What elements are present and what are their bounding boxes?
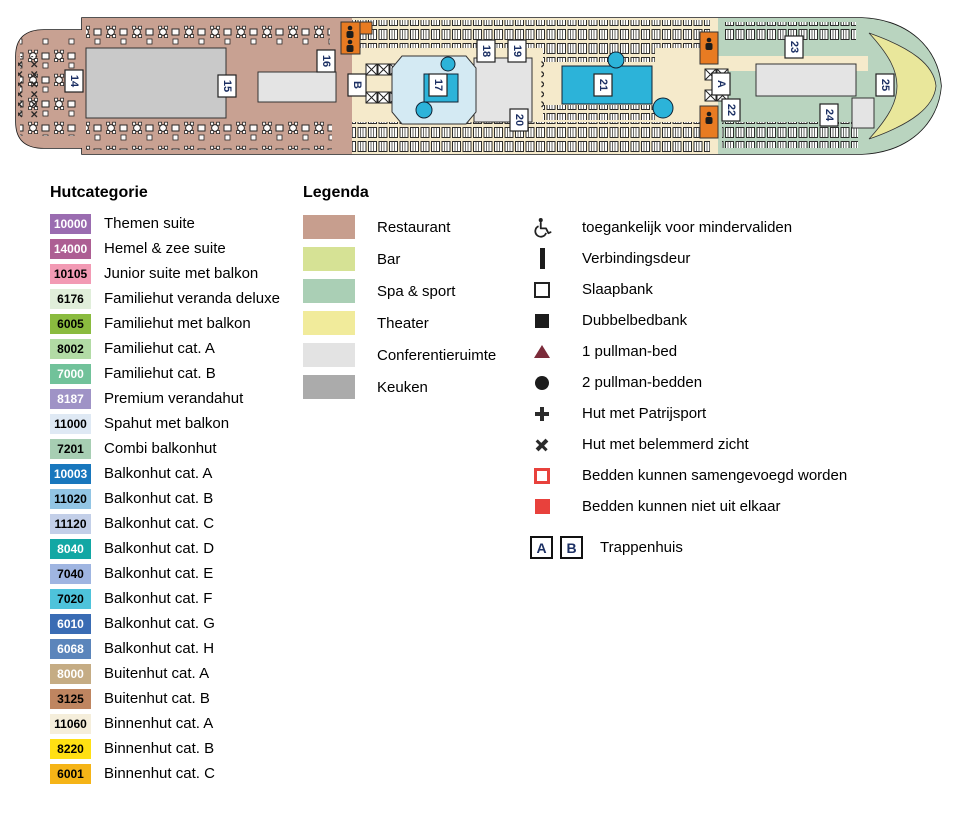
hut-item-label: Balkonhut cat. B bbox=[104, 490, 213, 507]
svg-text:16: 16 bbox=[320, 55, 332, 67]
symbol-item: Dubbelbedbank bbox=[530, 305, 940, 336]
legend-area-item: Theater bbox=[303, 307, 528, 339]
hut-item-label: Balkonhut cat. E bbox=[104, 565, 213, 582]
pullman-2-icon bbox=[535, 376, 549, 390]
hut-code-swatch: 11120 bbox=[50, 514, 91, 534]
deck-marker-A: A bbox=[712, 73, 730, 95]
hutcategorie-title: Hutcategorie bbox=[50, 184, 303, 202]
symbol-item: toegankelijk voor mindervaliden bbox=[530, 212, 940, 243]
symbol-label: 2 pullman-bedden bbox=[582, 374, 702, 391]
legend-color-swatch bbox=[303, 215, 355, 239]
hut-item-label: Familiehut cat. B bbox=[104, 365, 216, 382]
hut-code-swatch: 7020 bbox=[50, 589, 91, 609]
deck-plan-page: 141516B1718192021A22232425 Hutcategorie … bbox=[0, 0, 953, 819]
hut-item-label: Balkonhut cat. G bbox=[104, 615, 215, 632]
deck-marker-B: B bbox=[348, 74, 366, 96]
hut-code-swatch: 11020 bbox=[50, 489, 91, 509]
deck-marker-21: 21 bbox=[594, 74, 612, 96]
deck-marker-23: 23 bbox=[785, 36, 803, 58]
hut-item-label: Hemel & zee suite bbox=[104, 240, 226, 257]
legend-area-label: Restaurant bbox=[377, 219, 450, 236]
legenda-legend: Legenda RestaurantBarSpa & sportTheaterC… bbox=[303, 184, 528, 403]
hut-item: 8002Familiehut cat. A bbox=[50, 336, 303, 361]
kitchen-block bbox=[86, 48, 226, 118]
hut-code-swatch: 6068 bbox=[50, 639, 91, 659]
hut-item-label: Binnenhut cat. A bbox=[104, 715, 213, 732]
hut-code-swatch: 7201 bbox=[50, 439, 91, 459]
hut-item: 11120Balkonhut cat. C bbox=[50, 511, 303, 536]
legend-area-label: Spa & sport bbox=[377, 283, 455, 300]
symbol-label: Bedden kunnen samengevoegd worden bbox=[582, 467, 847, 484]
hut-code-swatch: 10003 bbox=[50, 464, 91, 484]
double-sofa-bed-icon bbox=[535, 314, 549, 328]
hut-code-swatch: 8000 bbox=[50, 664, 91, 684]
legenda-list: RestaurantBarSpa & sportTheaterConferent… bbox=[303, 211, 528, 403]
stairwell-box-a: A bbox=[530, 536, 553, 559]
hut-item: 8040Balkonhut cat. D bbox=[50, 536, 303, 561]
hut-code-swatch: 3125 bbox=[50, 689, 91, 709]
hut-item: 8187Premium verandahut bbox=[50, 386, 303, 411]
symbol-label: Dubbelbedbank bbox=[582, 312, 687, 329]
hut-code-swatch: 10000 bbox=[50, 214, 91, 234]
hut-item: 6176Familiehut veranda deluxe bbox=[50, 286, 303, 311]
hut-item: 14000Hemel & zee suite bbox=[50, 236, 303, 261]
double-sofa-bed-icon bbox=[530, 309, 554, 333]
deck-marker-17: 17 bbox=[429, 74, 447, 96]
symbols-legend: toegankelijk voor mindervalidenVerbindin… bbox=[530, 212, 940, 563]
hut-item-label: Spahut met balkon bbox=[104, 415, 229, 432]
svg-text:B: B bbox=[351, 81, 363, 89]
hut-item: 6001Binnenhut cat. C bbox=[50, 761, 303, 786]
hut-code-swatch: 7040 bbox=[50, 564, 91, 584]
legend-area-item: Conferentieruimte bbox=[303, 339, 528, 371]
hutcategorie-legend: Hutcategorie 10000Themen suite14000Hemel… bbox=[50, 184, 303, 786]
legend-area-item: Spa & sport bbox=[303, 275, 528, 307]
hut-code-swatch: 8040 bbox=[50, 539, 91, 559]
legend-area-item: Bar bbox=[303, 243, 528, 275]
hut-item: 8000Buitenhut cat. A bbox=[50, 661, 303, 686]
legend-area-item: Restaurant bbox=[303, 211, 528, 243]
hut-code-swatch: 11000 bbox=[50, 414, 91, 434]
hut-code-swatch: 11060 bbox=[50, 714, 91, 734]
hut-item: 7040Balkonhut cat. E bbox=[50, 561, 303, 586]
hut-item-label: Balkonhut cat. A bbox=[104, 465, 212, 482]
beds-joinable-icon bbox=[530, 464, 554, 488]
legend-area-label: Theater bbox=[377, 315, 429, 332]
deck-marker-22: 22 bbox=[722, 99, 740, 121]
beds-joinable-icon bbox=[534, 468, 550, 484]
legend-area-label: Keuken bbox=[377, 379, 428, 396]
legend-color-swatch bbox=[303, 343, 355, 367]
hut-item-label: Familiehut met balkon bbox=[104, 315, 251, 332]
hut-item-label: Binnenhut cat. B bbox=[104, 740, 214, 757]
hut-code-swatch: 8002 bbox=[50, 339, 91, 359]
connecting-door-icon bbox=[530, 247, 554, 271]
pullman-1-icon bbox=[534, 345, 550, 358]
hut-code-swatch: 6005 bbox=[50, 314, 91, 334]
svg-text:25: 25 bbox=[879, 79, 891, 91]
hut-code-swatch: 7000 bbox=[50, 364, 91, 384]
hut-item: 6068Balkonhut cat. H bbox=[50, 636, 303, 661]
svg-text:14: 14 bbox=[68, 75, 80, 88]
hut-item-label: Familiehut veranda deluxe bbox=[104, 290, 280, 307]
legend-color-swatch bbox=[303, 375, 355, 399]
sofa-bed-icon bbox=[530, 278, 554, 302]
porthole-icon bbox=[530, 402, 554, 426]
deck-marker-19: 19 bbox=[508, 40, 526, 62]
trappenhuis-row: AB Trappenhuis bbox=[530, 532, 940, 563]
hut-item-label: Balkonhut cat. H bbox=[104, 640, 214, 657]
symbol-item: 1 pullman-bed bbox=[530, 336, 940, 367]
svg-text:23: 23 bbox=[788, 41, 800, 53]
pullman-1-icon bbox=[530, 340, 554, 364]
hut-item: 8220Binnenhut cat. B bbox=[50, 736, 303, 761]
hut-item: 10003Balkonhut cat. A bbox=[50, 461, 303, 486]
symbol-label: toegankelijk voor mindervaliden bbox=[582, 219, 792, 236]
hutcategorie-list: 10000Themen suite14000Hemel & zee suite1… bbox=[50, 211, 303, 786]
legend-color-swatch bbox=[303, 247, 355, 271]
spa-block bbox=[756, 64, 856, 96]
wheelchair-icon bbox=[532, 217, 553, 238]
svg-text:21: 21 bbox=[597, 79, 609, 91]
hut-item-label: Familiehut cat. A bbox=[104, 340, 215, 357]
hut-item: 3125Buitenhut cat. B bbox=[50, 686, 303, 711]
hut-item-label: Binnenhut cat. C bbox=[104, 765, 215, 782]
legend-area-label: Bar bbox=[377, 251, 400, 268]
deck-marker-16: 16 bbox=[317, 50, 335, 72]
svg-text:A: A bbox=[715, 80, 727, 88]
hut-item-label: Premium verandahut bbox=[104, 390, 243, 407]
hut-code-swatch: 8220 bbox=[50, 739, 91, 759]
deck-marker-15: 15 bbox=[218, 75, 236, 97]
symbol-item: Bedden kunnen samengevoegd worden bbox=[530, 460, 940, 491]
symbol-item: Hut met belemmerd zicht bbox=[530, 429, 940, 460]
symbol-item: 2 pullman-bedden bbox=[530, 367, 940, 398]
legenda-title: Legenda bbox=[303, 184, 528, 202]
beds-fixed-icon bbox=[535, 499, 550, 514]
svg-text:15: 15 bbox=[221, 80, 233, 92]
stairwell-boxes: AB bbox=[530, 536, 590, 559]
svg-text:20: 20 bbox=[513, 114, 525, 126]
hut-code-swatch: 6001 bbox=[50, 764, 91, 784]
hut-item: 6010Balkonhut cat. G bbox=[50, 611, 303, 636]
symbol-label: 1 pullman-bed bbox=[582, 343, 677, 360]
hut-item: 10105Junior suite met balkon bbox=[50, 261, 303, 286]
deck-marker-20: 20 bbox=[510, 109, 528, 131]
hut-item: 6005Familiehut met balkon bbox=[50, 311, 303, 336]
hut-item: 7020Balkonhut cat. F bbox=[50, 586, 303, 611]
symbol-label: Bedden kunnen niet uit elkaar bbox=[582, 498, 780, 515]
trappenhuis-label: Trappenhuis bbox=[600, 539, 683, 556]
hut-item-label: Balkonhut cat. F bbox=[104, 590, 212, 607]
hut-item: 7201Combi balkonhut bbox=[50, 436, 303, 461]
hut-code-swatch: 6176 bbox=[50, 289, 91, 309]
deck-marker-18: 18 bbox=[477, 40, 495, 62]
symbol-label: Verbindingsdeur bbox=[582, 250, 690, 267]
connecting-door-icon bbox=[540, 248, 545, 269]
svg-text:22: 22 bbox=[725, 104, 737, 116]
svg-text:24: 24 bbox=[823, 109, 835, 122]
obstructed-view-icon bbox=[531, 433, 554, 456]
hut-code-swatch: 14000 bbox=[50, 239, 91, 259]
hut-item-label: Junior suite met balkon bbox=[104, 265, 258, 282]
symbol-label: Hut met Patrijsport bbox=[582, 405, 706, 422]
wheelchair-icon bbox=[530, 216, 554, 240]
symbol-item: Verbindingsdeur bbox=[530, 243, 940, 274]
deck-marker-14: 14 bbox=[65, 70, 83, 92]
pullman-2-icon bbox=[530, 371, 554, 395]
hut-code-swatch: 8187 bbox=[50, 389, 91, 409]
stage-block bbox=[258, 72, 336, 102]
hut-code-swatch: 6010 bbox=[50, 614, 91, 634]
symbol-item: Hut met Patrijsport bbox=[530, 398, 940, 429]
deck-marker-25: 25 bbox=[876, 74, 894, 96]
legend-color-swatch bbox=[303, 311, 355, 335]
hut-item-label: Balkonhut cat. D bbox=[104, 540, 214, 557]
svg-text:17: 17 bbox=[432, 79, 444, 91]
symbol-label: Hut met belemmerd zicht bbox=[582, 436, 749, 453]
whirlpool bbox=[653, 98, 673, 118]
symbol-label: Slaapbank bbox=[582, 281, 653, 298]
hut-code-swatch: 10105 bbox=[50, 264, 91, 284]
legend-area-label: Conferentieruimte bbox=[377, 347, 496, 364]
svg-text:18: 18 bbox=[480, 45, 492, 57]
legend-color-swatch bbox=[303, 279, 355, 303]
hut-item: 11020Balkonhut cat. B bbox=[50, 486, 303, 511]
symbol-item: Bedden kunnen niet uit elkaar bbox=[530, 491, 940, 522]
hut-item: 11060Binnenhut cat. A bbox=[50, 711, 303, 736]
hut-item: 11000Spahut met balkon bbox=[50, 411, 303, 436]
porthole-icon bbox=[534, 406, 550, 422]
hut-item: 10000Themen suite bbox=[50, 211, 303, 236]
hut-item-label: Themen suite bbox=[104, 215, 195, 232]
deck-marker-24: 24 bbox=[820, 104, 838, 126]
ship-deck-plan: 141516B1718192021A22232425 bbox=[0, 0, 953, 172]
obstructed-view-icon bbox=[530, 433, 554, 457]
stern-block bbox=[852, 98, 874, 128]
hut-item-label: Combi balkonhut bbox=[104, 440, 217, 457]
symbols-list: toegankelijk voor mindervalidenVerbindin… bbox=[530, 212, 940, 522]
hut-item-label: Balkonhut cat. C bbox=[104, 515, 214, 532]
legend-area-item: Keuken bbox=[303, 371, 528, 403]
stairwell-box-b: B bbox=[560, 536, 583, 559]
symbol-item: Slaapbank bbox=[530, 274, 940, 305]
sofa-bed-icon bbox=[534, 282, 550, 298]
hut-item-label: Buitenhut cat. B bbox=[104, 690, 210, 707]
beds-fixed-icon bbox=[530, 495, 554, 519]
svg-text:19: 19 bbox=[511, 45, 523, 57]
hut-item-label: Buitenhut cat. A bbox=[104, 665, 209, 682]
hut-item: 7000Familiehut cat. B bbox=[50, 361, 303, 386]
